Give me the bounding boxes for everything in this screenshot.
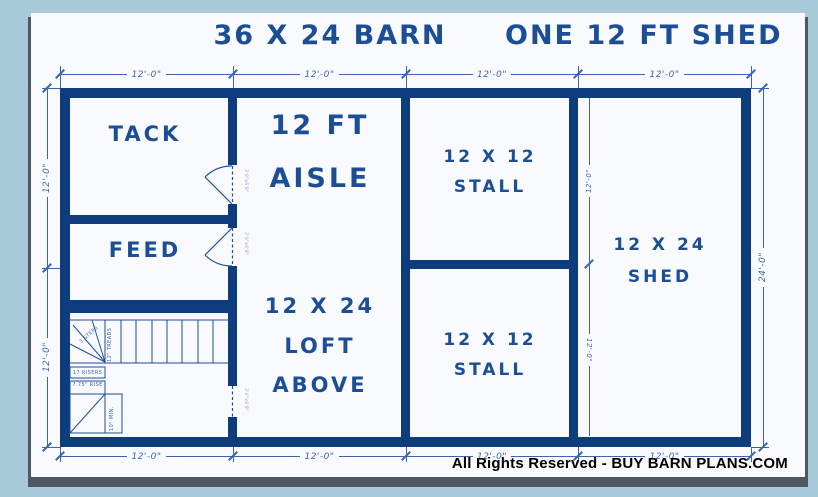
room-label-feed: FEED xyxy=(62,238,228,262)
room-label-loft-line3: ABOVE xyxy=(240,373,400,397)
stair-rise-label: 7.75" RISE xyxy=(71,382,104,388)
dim-label: 12'-0" xyxy=(645,70,683,80)
dim-top-2: 12'-0" xyxy=(233,68,406,81)
dim-label: 12'-0" xyxy=(42,338,52,376)
feed-door-size-label: 3'0"x6'8" xyxy=(243,232,248,266)
wall-aisle-west-seg1 xyxy=(228,88,237,165)
dim-extension xyxy=(42,268,60,269)
tack-door-size-label: 3'0"x6'8" xyxy=(243,169,248,203)
dim-label: 12'-0" xyxy=(127,70,165,80)
room-label-aisle-line1: 12 FT xyxy=(240,110,400,141)
room-label-shed-line1: 12 X 24 xyxy=(580,235,740,255)
dim-right-overall: 24'-0" xyxy=(756,88,770,447)
wall-exterior-right xyxy=(741,88,751,447)
dim-extension xyxy=(406,66,407,88)
room-label-loft-line1: 12 X 24 xyxy=(240,294,400,318)
plan-title-barn: 36 X 24 BARN xyxy=(195,20,465,51)
dim-extension xyxy=(751,88,769,89)
room-label-stall-top-line2: STALL xyxy=(412,177,568,197)
dim-left-2: 12'-0" xyxy=(40,268,54,447)
dim-top-3: 12'-0" xyxy=(406,68,578,81)
stair-treads-label: 12" TREADS xyxy=(107,322,113,362)
room-label-loft-line2: LOFT xyxy=(240,334,400,358)
dim-label: 24'-0" xyxy=(758,248,768,286)
dim-label: 12'-0" xyxy=(300,70,338,80)
wall-aisle-west-seg3 xyxy=(228,266,237,386)
room-label-aisle-line2: AISLE xyxy=(240,163,400,194)
dim-label: 12'-0" xyxy=(127,452,165,462)
dim-top-1: 12'-0" xyxy=(60,68,233,81)
room-label-stall-bottom-line2: STALL xyxy=(412,360,568,380)
stair-min-label: 10" MIN. xyxy=(109,398,115,431)
dim-extension xyxy=(42,447,60,448)
dim-label: 12'-0" xyxy=(585,165,593,197)
dim-shed-interior-2: 12'-0" xyxy=(582,264,596,436)
dim-extension xyxy=(406,447,407,462)
wall-feed-stair xyxy=(60,300,237,313)
dim-extension xyxy=(751,447,769,448)
room-label-tack: TACK xyxy=(62,122,228,146)
barn-plan-page: 36 X 24 BARN ONE 12 FT SHED 12'-0" 12'-0… xyxy=(0,0,818,497)
dim-extension xyxy=(60,66,61,88)
wall-aisle-west-seg4 xyxy=(228,417,237,447)
plan-title-shed: ONE 12 FT SHED xyxy=(505,20,770,51)
dim-label: 12'-0" xyxy=(473,70,511,80)
stair-risers-label: 17 RISERS xyxy=(70,370,105,376)
dim-extension xyxy=(60,447,61,462)
dim-label: 12'-0" xyxy=(300,452,338,462)
dim-extension xyxy=(578,66,579,88)
aisle-door-size-label: 3'0"x6'8" xyxy=(243,388,248,418)
dim-extension xyxy=(233,66,234,88)
dim-bottom-2: 12'-0" xyxy=(233,450,406,463)
dim-extension xyxy=(751,66,752,88)
wall-tack-feed xyxy=(60,215,237,224)
dim-extension xyxy=(42,88,60,89)
dim-label: 12'-0" xyxy=(42,159,52,197)
dim-label: 12'-0" xyxy=(585,334,593,366)
wall-stall-divider xyxy=(401,260,578,269)
room-label-stall-bottom-line1: 12 X 12 xyxy=(412,330,568,350)
room-label-shed-line2: SHED xyxy=(580,267,740,287)
room-label-stall-top-line1: 12 X 12 xyxy=(412,147,568,167)
dim-left-1: 12'-0" xyxy=(40,88,54,268)
dim-bottom-1: 12'-0" xyxy=(60,450,233,463)
dim-top-4: 12'-0" xyxy=(578,68,751,81)
dim-extension xyxy=(233,447,234,462)
copyright-text: All Rights Reserved - BUY BARN PLANS.COM xyxy=(452,455,788,472)
